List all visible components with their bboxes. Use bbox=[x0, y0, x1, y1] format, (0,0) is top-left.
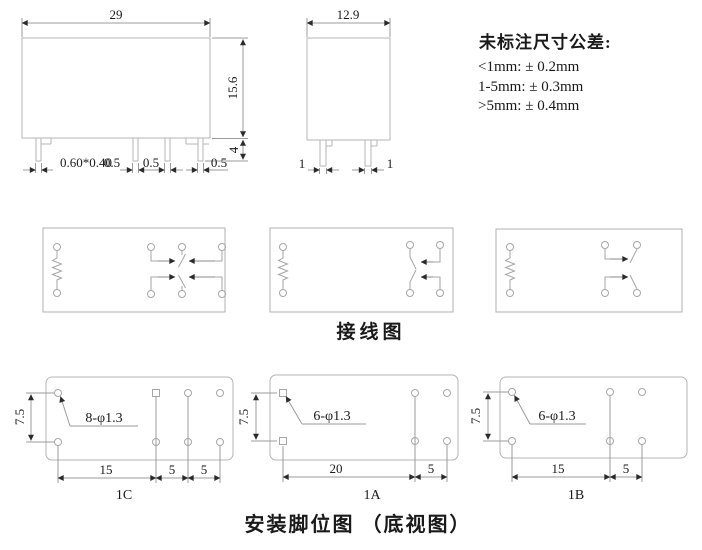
row-pitch-label: 7.5 bbox=[468, 408, 483, 424]
bottom-extension-lines bbox=[283, 397, 447, 482]
row-pitch-dimension bbox=[483, 392, 508, 441]
front-view-pins bbox=[320, 140, 377, 166]
wiring-diagram-1a bbox=[270, 228, 453, 312]
hole-callout-label: 6-φ1.3 bbox=[538, 409, 575, 424]
row-pitch-label: 7.5 bbox=[236, 409, 251, 425]
wiring-section-caption: 接线图 bbox=[336, 320, 405, 343]
contact-terminals bbox=[407, 242, 444, 297]
row-pitch-dimension bbox=[26, 393, 54, 442]
span-label-3: 5 bbox=[201, 462, 208, 477]
side-pin-dimensions bbox=[23, 163, 228, 173]
layout-label-1c: 1C bbox=[116, 488, 132, 503]
front-pin-dimensions bbox=[308, 168, 384, 174]
wiring-diagram-1c bbox=[43, 228, 226, 312]
coil-symbol bbox=[279, 244, 288, 297]
mounting-holes bbox=[280, 390, 451, 445]
front-pin-dim-label-left: 1 bbox=[299, 156, 306, 171]
row-pitch-dimension bbox=[251, 393, 277, 441]
contact-arrows bbox=[158, 261, 215, 277]
relay-drawing-canvas: 29 15.6 4 0.60*0.40 0.5 0.5 0.5 12.9 1 1 bbox=[0, 0, 702, 550]
tolerance-note: 未标注尺寸公差: <1mm: ± 0.2mm 1-5mm: ± 0.3mm >5… bbox=[478, 32, 612, 114]
span-label-1: 15 bbox=[552, 461, 565, 476]
side-pin-length-dim-label: 4 bbox=[226, 146, 241, 153]
contact-arrows bbox=[610, 259, 628, 277]
pin-width-dim-label-1: 0.5 bbox=[104, 155, 120, 170]
relay-body-side bbox=[22, 38, 210, 138]
front-width-dim-label: 12.9 bbox=[337, 7, 360, 22]
tolerance-line-1: <1mm: ± 0.2mm bbox=[478, 59, 580, 75]
layout-label-1b: 1B bbox=[568, 488, 584, 503]
front-pin-dim-label-right: 1 bbox=[387, 156, 394, 171]
pin-width-dim-label-3: 0.5 bbox=[211, 155, 227, 170]
technical-drawing-page: 29 15.6 4 0.60*0.40 0.5 0.5 0.5 12.9 1 1 bbox=[0, 0, 702, 550]
coil-symbol bbox=[53, 244, 62, 297]
footprint-section-caption: 安装脚位图 （底视图） bbox=[245, 512, 472, 536]
side-view-drawing: 29 15.6 4 0.60*0.40 0.5 0.5 0.5 bbox=[22, 7, 248, 173]
tolerance-line-3: >5mm: ± 0.4mm bbox=[478, 98, 580, 114]
wiring-diagram-1b bbox=[496, 229, 682, 312]
span-label-2: 5 bbox=[169, 462, 176, 477]
hole-callout-label: 8-φ1.3 bbox=[85, 411, 122, 426]
bottom-extension-lines bbox=[58, 397, 220, 483]
pin-width-dim-label-2: 0.5 bbox=[143, 155, 159, 170]
side-width-dim-label: 29 bbox=[110, 7, 123, 22]
hole-callout-label: 6-φ1.3 bbox=[313, 409, 350, 424]
span-label-2: 5 bbox=[623, 461, 630, 476]
contact-terminals bbox=[148, 244, 226, 298]
footprint-1c: 7.5 8-φ1.3 15 5 5 1C bbox=[12, 377, 233, 503]
coil-symbol bbox=[506, 244, 515, 297]
span-label-1: 15 bbox=[100, 462, 113, 477]
layout-label-1a: 1A bbox=[363, 488, 381, 503]
tolerance-line-2: 1-5mm: ± 0.3mm bbox=[478, 79, 584, 95]
tolerance-title: 未标注尺寸公差: bbox=[478, 32, 612, 52]
front-view-drawing: 12.9 1 1 bbox=[299, 7, 394, 174]
side-height-dim-label: 15.6 bbox=[225, 76, 240, 99]
contact-terminals bbox=[602, 242, 641, 297]
relay-body-front bbox=[307, 38, 390, 140]
mounting-holes bbox=[55, 390, 224, 446]
footprint-1b: 7.5 6-φ1.3 15 5 1B bbox=[468, 377, 687, 503]
row-pitch-label: 7.5 bbox=[12, 409, 27, 425]
mounting-holes bbox=[509, 389, 646, 445]
footprint-1a: 7.5 6-φ1.3 20 5 1A bbox=[236, 375, 458, 503]
contact-arrows bbox=[421, 262, 433, 277]
span-label-1: 20 bbox=[330, 461, 343, 476]
span-label-2: 5 bbox=[428, 461, 435, 476]
